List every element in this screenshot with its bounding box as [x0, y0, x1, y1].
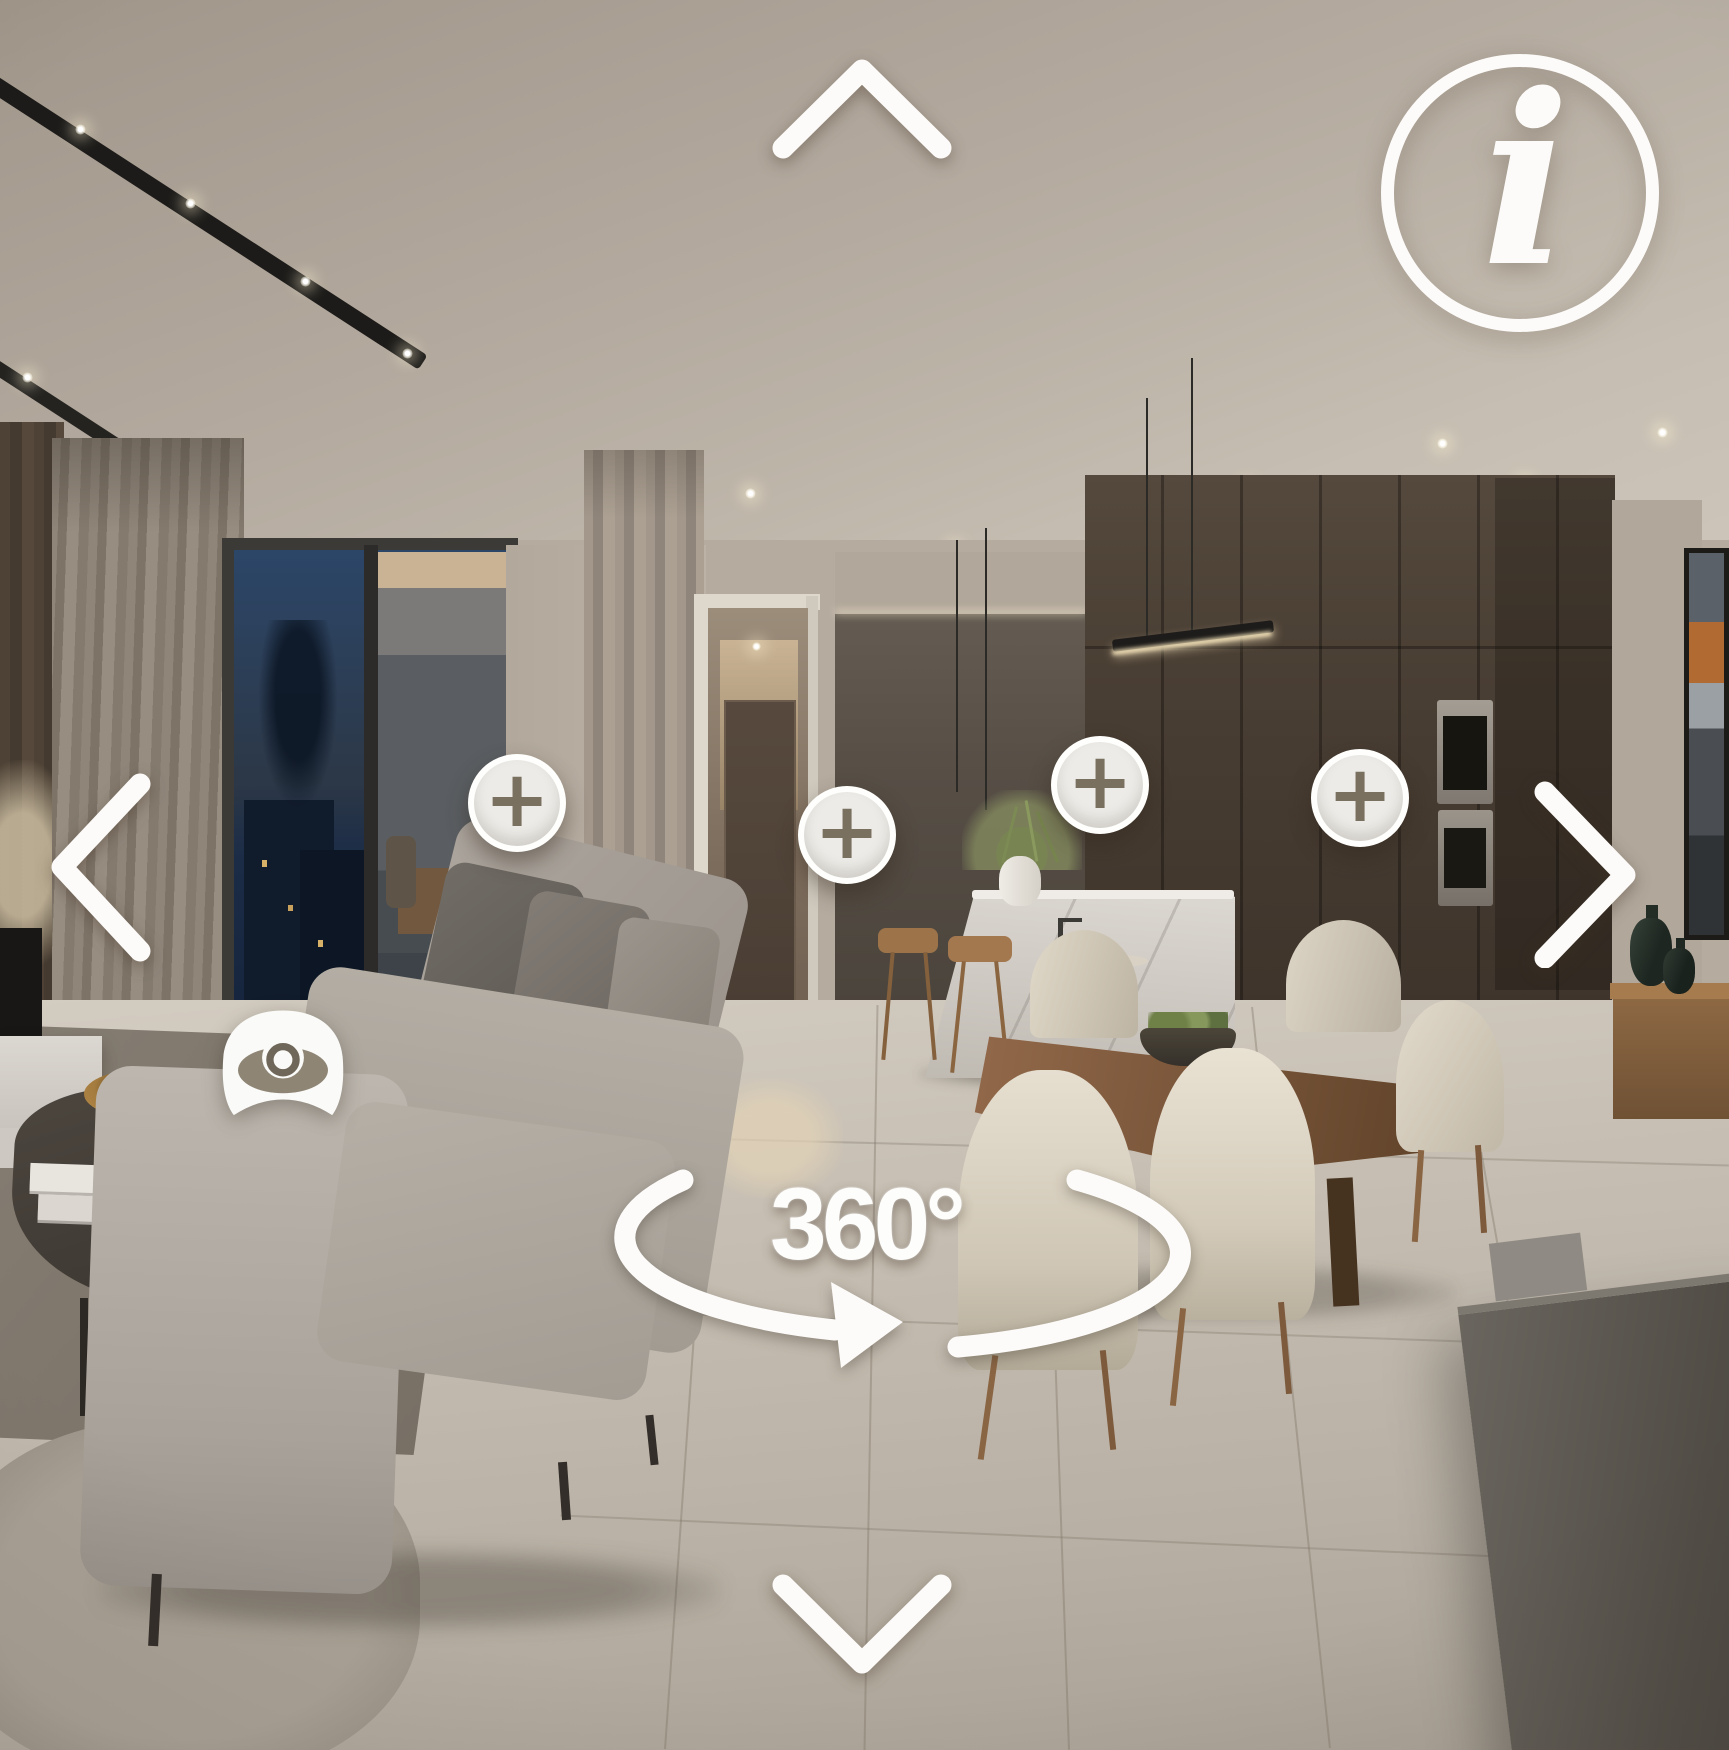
plus-icon: + [484, 761, 549, 839]
chevron-right-icon [1530, 778, 1645, 968]
pendant-cord [985, 528, 987, 810]
spot-light [75, 124, 86, 135]
bar-stool [948, 936, 1012, 962]
pendant-cord [1191, 358, 1193, 634]
hotspot-button[interactable]: + [1311, 749, 1409, 847]
spot-light [300, 276, 311, 287]
downlight [745, 488, 756, 499]
chevron-up-icon [765, 50, 960, 165]
info-icon: i [1481, 64, 1570, 299]
rotation-label: 360° [770, 1166, 961, 1283]
downlight [1437, 438, 1448, 449]
dark-vase [1663, 948, 1695, 994]
pan-right-button[interactable] [1530, 778, 1645, 973]
oven-glass [1443, 716, 1487, 790]
eye-icon [215, 1006, 351, 1126]
spot-light [402, 348, 413, 359]
sideboard [1613, 999, 1729, 1119]
plus-icon: + [814, 793, 879, 871]
spot-light [185, 198, 196, 209]
kitchen-wall-top [835, 552, 1087, 616]
pendant-cord [1146, 398, 1148, 646]
vase [999, 856, 1041, 906]
lit-window-dot [318, 940, 323, 947]
pan-down-button[interactable] [765, 1568, 960, 1688]
hotspot-button[interactable]: + [1051, 736, 1149, 834]
panorama-viewer: i + + + + 360° [0, 0, 1729, 1750]
chevron-left-icon [40, 770, 160, 965]
oven-glass [1444, 828, 1486, 888]
viewpoint-marker[interactable] [215, 1006, 351, 1131]
lit-window-dot [262, 860, 267, 867]
hotspot-button[interactable]: + [798, 786, 896, 884]
hallway-light [752, 642, 761, 651]
plus-icon: + [1327, 756, 1392, 834]
pendant-cord [956, 540, 958, 792]
hallway-mirror [724, 700, 796, 1010]
lit-window-dot [288, 905, 293, 911]
balcony-chair [386, 836, 416, 908]
faucet [1058, 918, 1082, 922]
pan-up-button[interactable] [765, 50, 960, 170]
bar-stool [878, 928, 938, 953]
tree-silhouette [258, 620, 338, 810]
downlight [1657, 427, 1668, 438]
tv [0, 928, 42, 1038]
plus-icon: + [1067, 743, 1132, 821]
cove-light [835, 610, 1087, 617]
hotspot-button[interactable]: + [468, 754, 566, 852]
pan-left-button[interactable] [40, 770, 160, 970]
info-button[interactable]: i [1381, 54, 1659, 332]
spot-light [22, 372, 33, 383]
chevron-down-icon [765, 1568, 960, 1683]
artwork [1684, 548, 1729, 940]
media-slab-object [1489, 1233, 1587, 1302]
